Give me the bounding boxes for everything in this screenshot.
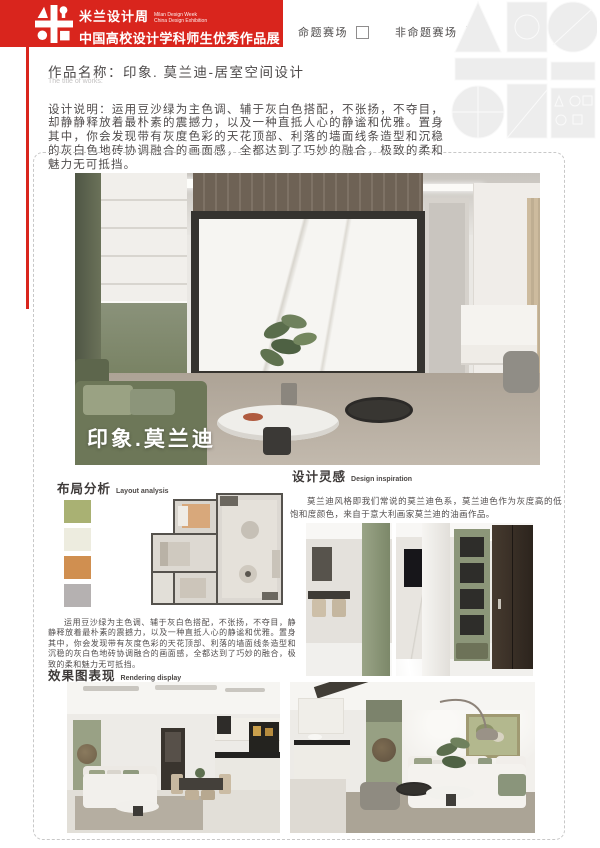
bench (456, 643, 488, 659)
themed-label: 命题赛场 (298, 24, 348, 40)
main-render-image: 印象.莫兰迪 (75, 173, 540, 465)
shelf-niche (460, 537, 484, 557)
ceiling-light (83, 686, 139, 691)
living-room-render-image (290, 682, 535, 833)
window-light (253, 726, 261, 736)
red-accent-line (26, 47, 29, 309)
color-swatches (64, 500, 91, 607)
work-title-en: The title of works: (48, 78, 103, 85)
inspiration-text: 莫兰迪风格即我们常说的莫兰迪色系，莫兰迪色作为灰度高的低饱和度颜色，来自于意大利… (290, 495, 562, 521)
door-handle (498, 599, 501, 609)
ottoman (360, 782, 400, 810)
stool (503, 351, 539, 393)
floor (290, 779, 346, 833)
swatch-orange (64, 556, 91, 579)
shelf-niche (460, 563, 484, 583)
poster-page: 米兰设计周 Milan Design Week China Design Exh… (0, 0, 600, 848)
shelf-niche (298, 698, 344, 734)
base-cabinet (294, 745, 350, 779)
swatch-olive (64, 500, 91, 523)
geometric-watermark (447, 0, 597, 140)
chair (312, 599, 326, 617)
round-art-piece (372, 738, 396, 762)
dining-table (179, 778, 223, 790)
floor-plan-image (122, 492, 292, 614)
inspiration-heading-en: Design inspiration (351, 476, 412, 483)
dining-table (308, 591, 350, 599)
sofa-cushion (83, 385, 133, 415)
coffee-table-base (446, 794, 456, 806)
range-hood (217, 716, 231, 734)
green-throw (498, 774, 526, 796)
green-pillar (362, 523, 390, 676)
header-en-line2: China Design Exhibition (154, 18, 207, 24)
chair (332, 599, 346, 617)
design-inspiration-heading: 设计灵感Design inspiration (292, 466, 412, 486)
dining-chair (201, 790, 215, 800)
description-label: 设计说明： (48, 104, 112, 116)
ceiling-light (155, 685, 217, 690)
themed-option: 命题赛场 (298, 24, 369, 40)
ceiling-light (225, 688, 265, 692)
door-line (512, 525, 513, 669)
round-art-piece (77, 744, 97, 764)
header-exhibition-title: 中国高校设计学科师生优秀作品展 (79, 28, 280, 47)
basin (308, 734, 322, 740)
swatch-cream (64, 528, 91, 551)
header-subtitle-en: Milan Design Week China Design Exhibitio… (154, 12, 207, 24)
wood-slat-panel (193, 173, 423, 213)
doorway-inner (429, 203, 465, 373)
header-titles: 米兰设计周 Milan Design Week China Design Exh… (79, 6, 280, 47)
living-dining-render-image (67, 682, 280, 833)
table-plant (195, 768, 205, 778)
white-pillar (422, 523, 450, 676)
header-banner: 米兰设计周 Milan Design Week China Design Exh… (0, 0, 283, 47)
main-image-caption: 印象.莫兰迪 (87, 423, 216, 453)
lamp-shade (476, 728, 498, 740)
rendering-heading-en: Rendering display (121, 675, 182, 682)
dining-chair (185, 790, 199, 800)
rendering-heading-cn: 效果图表现 (48, 669, 116, 683)
plant-pot (281, 383, 297, 405)
shelf-niche (460, 589, 484, 609)
layout-heading-cn: 布局分析 (57, 482, 111, 496)
coffee-table-base (263, 427, 291, 455)
sofa-cushion (130, 389, 175, 415)
body-paragraph: 运用豆沙绿为主色调、辅于灰白色搭配，不张扬，不夺目，静静释放着最朴素的震撼力，以… (48, 618, 296, 670)
swatch-gray (64, 584, 91, 607)
themed-checkbox[interactable] (356, 26, 369, 39)
milan-design-week-logo (35, 5, 73, 43)
arc-floor-lamp (430, 690, 510, 740)
coffee-table-base (133, 806, 143, 816)
inspiration-heading-cn: 设计灵感 (292, 470, 346, 484)
hallway-render-image (306, 523, 533, 676)
window-light (265, 728, 273, 736)
shelf-niche (460, 615, 484, 635)
window (312, 547, 332, 581)
corridor-inner (165, 732, 181, 762)
side-table (345, 397, 413, 423)
work-title-text: 印象. 莫兰迪-居室空间设计 (123, 65, 305, 80)
dish (243, 413, 263, 421)
marble-panel (199, 219, 417, 371)
header-title-cn: 米兰设计周 (79, 6, 149, 25)
